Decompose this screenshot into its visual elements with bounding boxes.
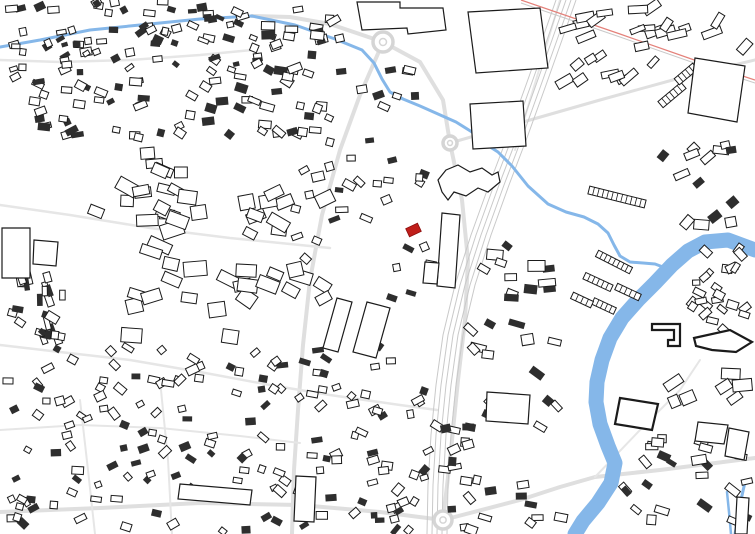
rowhouse-block: [658, 82, 686, 107]
building: [56, 29, 66, 35]
building: [293, 6, 303, 13]
building: [260, 512, 272, 522]
building: [283, 32, 295, 41]
building: [409, 470, 419, 480]
building: [99, 377, 108, 384]
building: [48, 6, 60, 13]
building: [185, 110, 195, 119]
building: [151, 407, 162, 417]
building: [261, 22, 275, 31]
building: [524, 500, 537, 508]
building: [390, 515, 399, 524]
building: [248, 96, 261, 106]
building: [532, 515, 543, 521]
building: [273, 468, 285, 477]
building: [279, 475, 291, 486]
building: [647, 515, 657, 525]
building: [42, 286, 47, 296]
building: [140, 147, 155, 159]
building: [110, 0, 120, 7]
building: [178, 441, 191, 452]
building: [715, 378, 733, 394]
building: [61, 87, 72, 94]
building: [407, 410, 414, 419]
building: [234, 73, 246, 80]
building: [60, 290, 66, 300]
building: [375, 517, 385, 523]
building: [207, 66, 217, 75]
building: [11, 475, 20, 483]
building: [312, 236, 322, 245]
building: [371, 512, 378, 519]
building: [504, 294, 519, 302]
building: [313, 276, 332, 293]
building: [297, 127, 307, 136]
building: [420, 474, 429, 481]
building: [114, 83, 123, 91]
building: [263, 64, 275, 76]
building: [693, 219, 709, 230]
building: [641, 479, 653, 490]
building: [495, 258, 507, 268]
building: [524, 284, 538, 295]
building: [291, 204, 301, 213]
building: [72, 466, 84, 474]
landmark-building: [470, 101, 526, 149]
map-viewport[interactable]: [0, 0, 755, 534]
building: [316, 467, 323, 474]
building: [94, 481, 102, 488]
building: [647, 56, 659, 69]
building: [260, 400, 271, 410]
building: [484, 318, 496, 329]
roundabout-island: [380, 39, 387, 46]
building: [43, 398, 50, 404]
building: [156, 128, 165, 137]
building: [227, 66, 236, 73]
building: [99, 405, 108, 412]
building: [39, 90, 49, 99]
building: [505, 274, 517, 281]
building: [202, 116, 215, 126]
building: [691, 454, 707, 465]
building: [258, 465, 266, 474]
building: [371, 363, 380, 370]
building: [356, 85, 367, 94]
building: [555, 73, 574, 89]
building: [74, 513, 87, 523]
building: [295, 393, 304, 402]
building: [311, 171, 325, 182]
building: [711, 12, 725, 29]
building: [286, 261, 303, 278]
building: [335, 34, 345, 43]
building: [325, 494, 337, 502]
building: [143, 10, 155, 17]
building: [516, 493, 527, 500]
building: [24, 446, 32, 454]
building: [194, 374, 203, 382]
building: [131, 459, 142, 466]
building: [307, 51, 316, 60]
landmark-building: [725, 428, 749, 460]
building: [266, 212, 290, 233]
building: [508, 319, 525, 330]
building: [131, 373, 140, 379]
building: [402, 243, 414, 253]
building: [463, 491, 475, 504]
building: [134, 133, 144, 142]
building: [181, 292, 198, 304]
building: [133, 100, 147, 111]
building: [221, 329, 239, 345]
building: [204, 102, 217, 114]
building: [226, 362, 236, 372]
building: [187, 21, 199, 31]
building: [237, 278, 258, 293]
rowhouse-block: [588, 186, 646, 208]
building: [386, 293, 398, 302]
building: [367, 455, 380, 465]
building: [32, 409, 43, 420]
building: [296, 102, 304, 110]
building: [529, 366, 545, 381]
building: [482, 350, 494, 359]
building: [360, 213, 373, 223]
building: [65, 441, 75, 452]
building: [416, 174, 423, 182]
building: [721, 368, 740, 379]
map-canvas[interactable]: [0, 0, 755, 534]
building: [62, 431, 72, 440]
landmark-building: [486, 392, 530, 424]
building: [222, 33, 235, 43]
building: [291, 232, 303, 241]
building: [741, 478, 753, 485]
building: [29, 97, 40, 106]
landmark-building: [694, 330, 752, 352]
building: [137, 443, 150, 454]
building: [367, 479, 378, 486]
building: [651, 438, 664, 447]
landmark-building: [735, 497, 749, 534]
building: [113, 382, 126, 395]
building: [105, 346, 116, 357]
building: [120, 444, 128, 452]
building: [385, 66, 397, 74]
building: [361, 390, 371, 399]
building: [639, 455, 652, 469]
building: [209, 77, 221, 85]
building: [404, 525, 414, 534]
building: [328, 215, 341, 224]
building: [94, 97, 104, 104]
building: [232, 389, 242, 397]
building: [182, 416, 192, 421]
building: [315, 291, 332, 306]
building: [257, 432, 269, 443]
building: [37, 294, 43, 306]
building: [245, 417, 256, 425]
building: [157, 345, 166, 354]
building: [378, 466, 389, 474]
building: [285, 26, 298, 33]
building: [92, 48, 100, 56]
building: [478, 513, 492, 522]
building: [311, 436, 323, 443]
building: [112, 126, 120, 133]
building: [258, 374, 268, 383]
building: [218, 527, 227, 534]
building: [310, 30, 324, 40]
building: [320, 353, 332, 364]
building: [54, 396, 65, 406]
building: [204, 438, 215, 448]
building: [318, 386, 327, 394]
building: [137, 95, 149, 102]
building: [336, 68, 347, 75]
building: [215, 97, 228, 106]
building: [305, 190, 314, 199]
building: [226, 21, 233, 28]
building: [419, 386, 429, 396]
building: [249, 34, 257, 41]
building: [387, 156, 397, 164]
building: [77, 69, 84, 75]
building: [188, 9, 197, 14]
building: [390, 524, 401, 534]
building: [460, 476, 472, 485]
building: [151, 509, 162, 518]
building: [517, 480, 529, 489]
building: [162, 379, 175, 387]
building: [315, 400, 327, 412]
building: [447, 443, 460, 455]
building: [233, 61, 240, 67]
building: [125, 63, 134, 71]
building: [701, 26, 722, 40]
rowhouse-block: [615, 283, 642, 300]
building: [332, 456, 342, 464]
building: [538, 278, 556, 287]
building: [381, 194, 392, 205]
building: [391, 483, 404, 497]
building: [51, 449, 62, 457]
building: [696, 498, 712, 513]
building: [410, 497, 419, 507]
building: [67, 488, 78, 497]
building: [307, 453, 317, 459]
building: [373, 180, 382, 187]
building: [106, 461, 118, 472]
building: [33, 1, 46, 13]
landmark-building: [357, 2, 446, 34]
building: [7, 495, 15, 503]
rowhouse-block: [583, 272, 613, 291]
building: [108, 407, 121, 420]
rowhouse-block: [595, 250, 632, 273]
building: [548, 337, 562, 346]
building: [233, 102, 246, 113]
building: [10, 72, 21, 82]
building: [185, 453, 197, 464]
landmark-building: [695, 422, 728, 444]
building: [326, 138, 335, 147]
building: [447, 506, 456, 513]
building: [258, 386, 266, 393]
building: [696, 472, 708, 479]
building: [357, 497, 367, 506]
building: [336, 207, 348, 213]
building: [119, 420, 130, 430]
building: [106, 98, 115, 106]
building: [250, 348, 260, 358]
building: [19, 27, 27, 36]
landmark-building: [688, 58, 745, 122]
building: [73, 41, 81, 47]
building: [684, 148, 700, 160]
landmark-building: [468, 8, 548, 73]
building: [261, 30, 275, 39]
building: [299, 166, 310, 175]
building: [692, 177, 705, 189]
building: [693, 287, 706, 298]
building: [464, 524, 478, 534]
building: [88, 204, 105, 218]
building: [12, 44, 20, 49]
building: [9, 66, 18, 72]
building: [654, 505, 669, 516]
building: [596, 9, 612, 17]
building: [207, 449, 216, 458]
building: [109, 359, 120, 370]
building: [167, 6, 177, 14]
building: [464, 323, 478, 337]
building: [84, 37, 91, 44]
building: [162, 256, 179, 271]
stream: [727, 492, 731, 534]
landmark-building: [652, 324, 680, 346]
building: [725, 195, 739, 209]
building: [174, 167, 187, 178]
building: [171, 39, 179, 47]
building: [692, 280, 699, 285]
highlighted-building[interactable]: [406, 223, 422, 237]
landmark-building: [2, 228, 30, 278]
building: [204, 14, 212, 22]
building: [37, 122, 50, 131]
landmark-building: [294, 476, 316, 522]
building: [699, 443, 713, 453]
building: [172, 60, 180, 68]
building: [136, 214, 158, 226]
building: [183, 260, 207, 277]
building: [419, 242, 429, 252]
building: [276, 443, 284, 450]
building: [236, 264, 257, 277]
building: [260, 102, 275, 113]
building: [178, 405, 186, 412]
buildings-layer: [3, 0, 753, 534]
building: [484, 486, 496, 496]
building: [346, 399, 359, 408]
building: [521, 333, 534, 345]
building: [365, 137, 374, 143]
building: [171, 24, 182, 34]
building: [41, 363, 54, 374]
building: [34, 106, 47, 117]
building: [233, 477, 242, 483]
building: [161, 271, 182, 288]
building: [16, 503, 24, 511]
building: [208, 301, 227, 318]
building: [174, 127, 187, 139]
building: [726, 299, 739, 310]
rowhouse-block: [592, 298, 617, 314]
building: [384, 177, 394, 183]
building: [271, 516, 283, 527]
building: [67, 354, 78, 365]
building: [657, 149, 670, 162]
building: [43, 272, 52, 283]
roundabout-island: [448, 141, 453, 146]
building: [235, 367, 244, 376]
building: [64, 421, 74, 430]
building: [129, 78, 142, 87]
building: [72, 474, 82, 484]
building: [141, 288, 163, 305]
building: [282, 282, 301, 299]
building: [190, 205, 207, 221]
building: [324, 161, 334, 171]
landmark-building: [33, 240, 58, 266]
building: [121, 327, 143, 343]
building: [386, 358, 395, 364]
building: [314, 189, 335, 208]
building: [62, 61, 72, 68]
building: [393, 263, 401, 271]
building: [167, 518, 180, 530]
building: [679, 390, 697, 406]
building: [628, 5, 648, 14]
building: [187, 353, 200, 364]
building: [706, 316, 718, 324]
landmark-building: [353, 302, 390, 358]
building: [732, 378, 752, 392]
building: [19, 48, 26, 55]
landmark-building: [323, 298, 352, 352]
building: [50, 501, 58, 509]
building: [157, 0, 168, 5]
building: [239, 467, 249, 474]
building: [630, 24, 646, 34]
building: [570, 58, 584, 72]
building: [347, 155, 355, 161]
building: [316, 512, 327, 520]
building: [238, 194, 255, 211]
building: [105, 9, 113, 17]
building: [19, 64, 26, 71]
building: [3, 378, 13, 384]
building: [234, 82, 249, 94]
building: [73, 100, 85, 109]
building: [423, 446, 434, 455]
building: [120, 522, 132, 532]
building: [332, 383, 341, 391]
roundabout-island: [440, 517, 446, 523]
building: [125, 48, 135, 57]
building: [97, 39, 107, 45]
